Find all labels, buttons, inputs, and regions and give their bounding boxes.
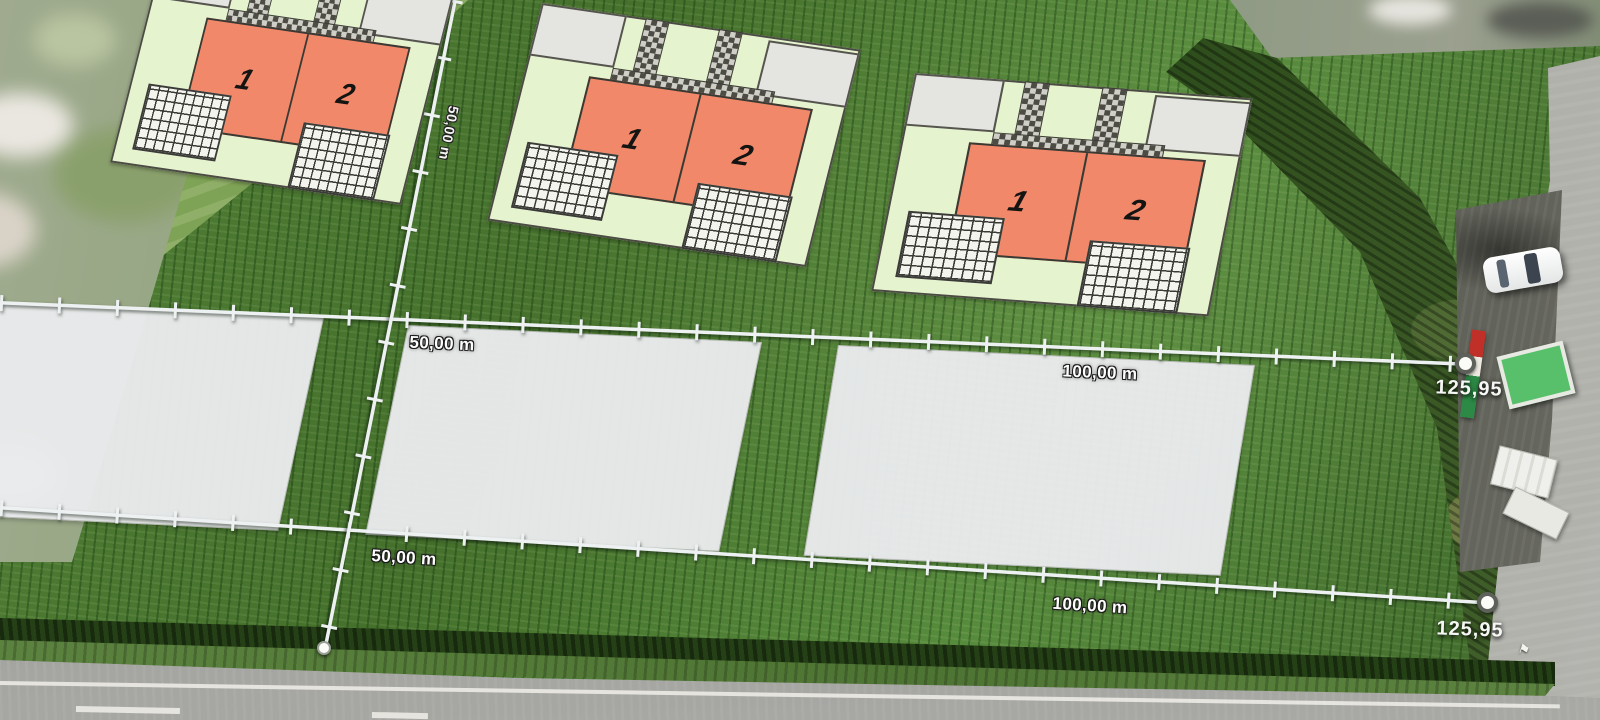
unit-number: 2: [1121, 194, 1149, 228]
terrace: [895, 211, 1005, 284]
measurement-endpoint-upper: [1455, 353, 1476, 374]
parking-pad: [152, 0, 243, 9]
building-plot-right: [804, 345, 1255, 576]
terrace: [511, 142, 619, 221]
measurement-label: 100,00 m: [1062, 361, 1138, 384]
measurement-label: 50,00 m: [409, 333, 475, 356]
unit-number: 2: [332, 78, 359, 113]
road-lane-marking: [372, 712, 428, 719]
paved-path: [1013, 81, 1050, 141]
terrace: [1077, 240, 1191, 314]
unit-number: 1: [1004, 185, 1032, 219]
unit-number: 1: [231, 63, 258, 98]
parking-pad: [529, 3, 627, 68]
measurement-total-label: 125,95: [1436, 617, 1504, 642]
building-plot-left: [0, 301, 324, 531]
parcel-3: 1 2: [871, 73, 1252, 316]
measurement-total-label: 125,95: [1435, 376, 1503, 401]
measurement-endpoint-lower: [1477, 592, 1498, 613]
measurement-label: 50,00 m: [371, 546, 437, 570]
parcel-2: 1 2: [487, 3, 861, 267]
measurement-endpoint-depth: [317, 641, 331, 655]
terrace: [287, 122, 390, 201]
unit-number: 1: [617, 122, 645, 157]
parking-pad: [904, 73, 1005, 132]
unit-number: 2: [728, 139, 756, 174]
aerial-site-plan: ⚑ 50,00 m 100,00 m 125,95 50,00 m 100,00…: [0, 0, 1600, 720]
building-plot-middle: [365, 325, 762, 552]
terrace: [681, 183, 793, 263]
car-windshield: [1523, 252, 1541, 284]
terrace: [132, 83, 232, 161]
car-rear-window: [1496, 259, 1510, 288]
